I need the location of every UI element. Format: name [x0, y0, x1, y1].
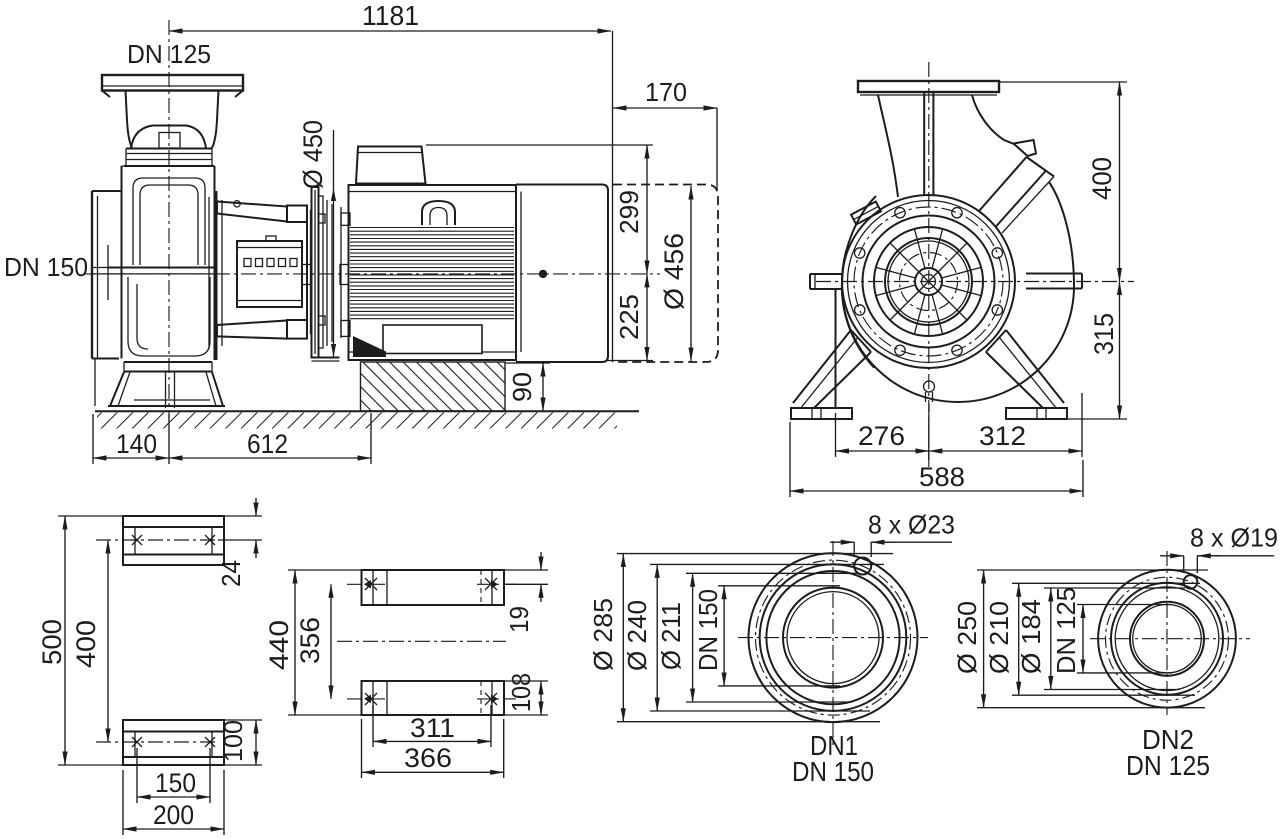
svg-text:100: 100	[218, 720, 248, 762]
svg-text:DN 150: DN 150	[792, 756, 874, 787]
svg-text:276: 276	[858, 421, 905, 451]
svg-text:24: 24	[216, 560, 246, 587]
svg-text:8 x Ø19: 8 x Ø19	[1190, 523, 1278, 553]
svg-text:299: 299	[614, 190, 644, 234]
svg-text:Ø 456: Ø 456	[659, 233, 689, 310]
svg-text:356: 356	[295, 617, 325, 664]
svg-text:DN 150: DN 150	[693, 589, 723, 671]
svg-text:312: 312	[979, 421, 1026, 451]
svg-text:400: 400	[1087, 157, 1117, 200]
svg-text:DN 150: DN 150	[4, 252, 88, 282]
svg-text:140: 140	[116, 429, 157, 459]
svg-text:200: 200	[153, 800, 194, 830]
svg-text:311: 311	[410, 713, 455, 743]
svg-text:Ø 450: Ø 450	[298, 120, 328, 189]
svg-text:Ø 285: Ø 285	[588, 598, 618, 671]
svg-text:315: 315	[1089, 313, 1119, 355]
svg-text:150: 150	[155, 768, 196, 798]
svg-text:8 x Ø23: 8 x Ø23	[868, 510, 955, 540]
svg-text:225: 225	[614, 294, 644, 340]
svg-text:90: 90	[507, 372, 537, 402]
svg-text:DN 125: DN 125	[127, 39, 211, 69]
svg-text:108: 108	[506, 673, 536, 712]
svg-text:612: 612	[247, 429, 288, 459]
svg-text:170: 170	[645, 77, 687, 107]
svg-text:400: 400	[71, 620, 101, 668]
svg-text:19: 19	[504, 606, 534, 633]
svg-text:Ø 210: Ø 210	[984, 601, 1014, 674]
svg-text:DN 125: DN 125	[1126, 750, 1210, 781]
svg-text:Ø 240: Ø 240	[622, 600, 652, 671]
svg-text:Ø 211: Ø 211	[656, 602, 686, 670]
svg-text:440: 440	[264, 620, 294, 670]
svg-text:DN 125: DN 125	[1051, 587, 1081, 674]
svg-text:500: 500	[37, 619, 67, 665]
svg-text:1181: 1181	[362, 0, 419, 31]
svg-text:Ø 250: Ø 250	[952, 601, 982, 674]
svg-text:588: 588	[919, 462, 965, 492]
svg-text:Ø 184: Ø 184	[1016, 599, 1046, 674]
svg-text:366: 366	[404, 743, 452, 773]
